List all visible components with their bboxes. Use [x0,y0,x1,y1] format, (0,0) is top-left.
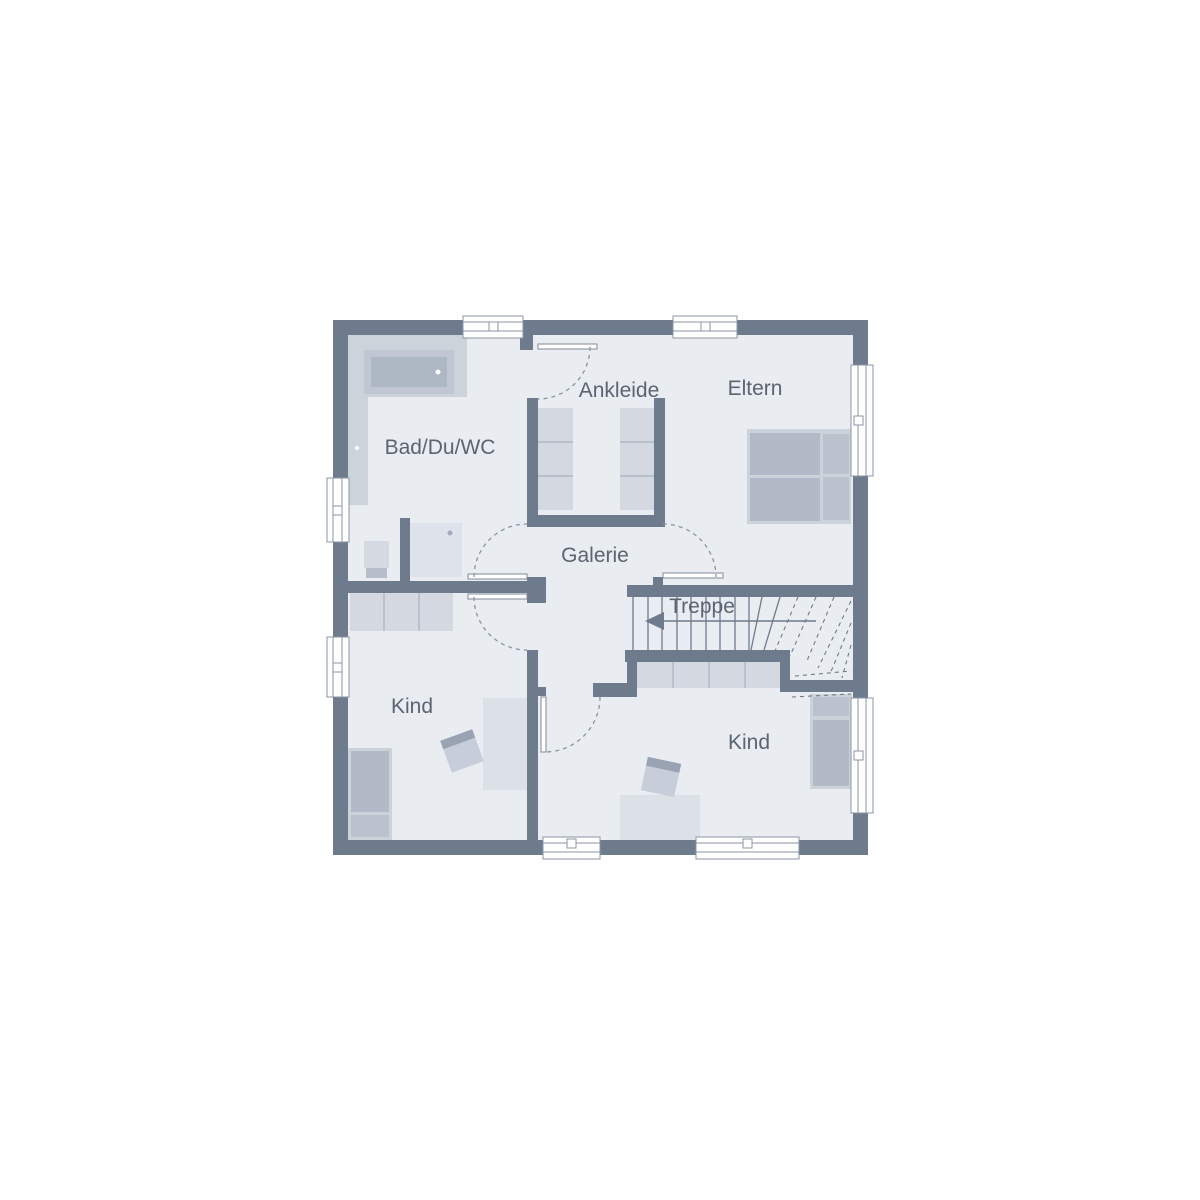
door-leaf-bath [468,574,527,579]
wall-closet-front [593,683,637,697]
mattress [351,751,389,812]
wall-bath-stub [400,518,410,588]
pillow [813,697,849,716]
toilet [364,541,389,568]
wall-stub [538,687,546,696]
wardrobe [350,591,453,631]
outer-wall-left [333,320,348,855]
wall-bath-kind [348,581,527,593]
bathtub-drain-dot [436,370,441,375]
wall-door-block [527,577,546,603]
room-label-kind-right: Kind [728,731,770,754]
wall-ankleide-right [654,398,665,515]
floorplan-canvas: Bad/Du/WC Ankleide Eltern Galerie Treppe… [0,0,1200,1200]
window-bottom-right [696,837,799,859]
window-right-upper [851,365,873,476]
door-leaf-eltern [663,573,723,578]
mattress [813,720,849,786]
floorplan-svg: Bad/Du/WC Ankleide Eltern Galerie Treppe… [0,0,1200,1200]
wall-hall-kindleft [527,650,538,840]
toilet-tank [366,568,387,578]
eltern-bed [747,429,851,524]
room-label-eltern: Eltern [728,377,783,400]
mattress [750,478,820,521]
room-label-kind-left: Kind [391,695,433,718]
washbasin-dot [355,446,359,450]
pillow [823,434,849,474]
wall-ankleide-bottom [527,515,665,527]
room-label-galerie: Galerie [561,544,629,567]
desk [620,795,700,840]
pillow [823,477,849,520]
wall-eltern-door-stub [653,577,663,586]
shower-drain-dot [448,531,453,536]
chair [641,757,681,797]
desk [483,698,527,790]
wardrobe-left [538,408,573,510]
room-label-bad: Bad/Du/WC [385,436,496,459]
room-label-ankleide: Ankleide [579,379,660,402]
window-left-lower [327,637,349,697]
mattress [750,433,820,475]
window-top-right [673,316,737,338]
pillow [351,815,389,837]
wardrobe-right [620,408,657,510]
door-leaf-kind-left [468,594,527,599]
door-leaf-ankleide [538,344,597,349]
wall-ankleide-left [527,398,538,515]
door-leaf-kind-right [541,697,546,752]
shower [410,523,462,577]
wall-winder-bottom [780,680,853,692]
window-top-left [463,316,523,338]
room-label-treppe: Treppe [669,595,735,618]
window-right-lower [851,698,873,813]
wall-stair-top [627,585,853,597]
wall-stair-bottom [625,650,790,662]
window-bottom-center [543,837,600,859]
window-left-upper [327,478,349,542]
outer-wall-top [333,320,868,335]
